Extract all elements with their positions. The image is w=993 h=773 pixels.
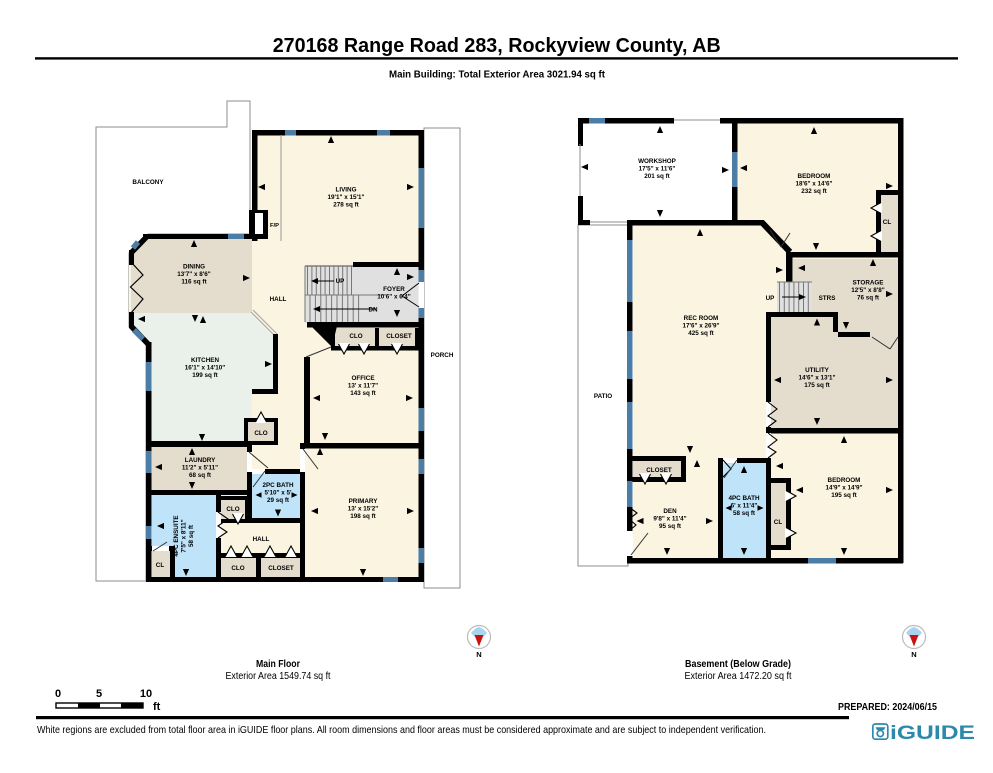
svg-text:LAUNDRY: LAUNDRY (185, 457, 216, 464)
svg-text:CL: CL (156, 562, 165, 569)
svg-text:14'6" x 13'1": 14'6" x 13'1" (799, 375, 836, 382)
svg-text:BEDROOM: BEDROOM (828, 477, 861, 484)
svg-text:STRS: STRS (819, 295, 836, 302)
svg-text:29 sq ft: 29 sq ft (267, 497, 290, 504)
svg-text:HALL: HALL (253, 536, 270, 543)
svg-text:11'2" x 5'11": 11'2" x 5'11" (182, 465, 218, 472)
svg-text:13' x 15'2": 13' x 15'2" (348, 506, 379, 513)
svg-text:9'8" x 11'4": 9'8" x 11'4" (653, 516, 686, 523)
svg-text:17'6" x 26'9": 17'6" x 26'9" (683, 323, 720, 330)
svg-text:195 sq ft: 195 sq ft (831, 492, 857, 499)
svg-text:CLOSET: CLOSET (646, 467, 672, 474)
svg-text:175 sq ft: 175 sq ft (804, 382, 830, 389)
svg-text:5: 5 (96, 688, 102, 700)
svg-text:BEDROOM: BEDROOM (798, 173, 831, 180)
svg-text:F/P: F/P (270, 223, 279, 229)
svg-text:2PC BATH: 2PC BATH (262, 482, 293, 489)
svg-text:REC ROOM: REC ROOM (684, 315, 719, 322)
svg-text:270168 Range Road 283, Rockyvi: 270168 Range Road 283, Rockyview County,… (273, 34, 721, 57)
svg-text:DN: DN (368, 307, 378, 314)
svg-text:425 sq ft: 425 sq ft (688, 330, 714, 337)
svg-text:UTILITY: UTILITY (805, 367, 830, 374)
svg-text:OFFICE: OFFICE (351, 375, 374, 382)
svg-text:58 sq ft: 58 sq ft (733, 510, 756, 517)
svg-text:CLOSET: CLOSET (268, 565, 294, 572)
svg-text:199 sq ft: 199 sq ft (192, 372, 218, 379)
svg-text:N: N (911, 650, 916, 659)
svg-text:UP: UP (766, 295, 775, 302)
svg-text:HALL: HALL (270, 296, 287, 303)
svg-text:143 sq ft: 143 sq ft (350, 390, 376, 397)
svg-text:19'1" x 15'1": 19'1" x 15'1" (328, 194, 365, 201)
svg-text:FOYER: FOYER (383, 286, 405, 293)
svg-text:Main Building: Total Exterior: Main Building: Total Exterior Area 3021.… (389, 69, 605, 81)
svg-text:14'9" x 14'9": 14'9" x 14'9" (826, 485, 863, 492)
svg-text:CLO: CLO (349, 333, 362, 340)
svg-text:PORCH: PORCH (431, 352, 454, 359)
svg-text:68 sq ft: 68 sq ft (189, 472, 212, 479)
svg-text:232 sq ft: 232 sq ft (801, 188, 827, 195)
svg-text:76 sq ft: 76 sq ft (857, 295, 880, 302)
svg-text:CL: CL (774, 519, 783, 526)
svg-text:58 sq ft: 58 sq ft (188, 524, 195, 547)
svg-text:PATIO: PATIO (594, 393, 612, 400)
svg-text:201 sq ft: 201 sq ft (644, 173, 670, 180)
svg-text:13' x 11'7": 13' x 11'7" (348, 383, 378, 390)
svg-text:WORKSHOP: WORKSHOP (638, 158, 676, 165)
svg-text:5'10" x 5': 5'10" x 5' (265, 490, 292, 497)
svg-text:13'7" x 8'6": 13'7" x 8'6" (177, 271, 210, 278)
svg-text:0: 0 (55, 688, 61, 700)
svg-text:278 sq ft: 278 sq ft (333, 202, 359, 209)
svg-text:4PC BATH: 4PC BATH (728, 495, 759, 502)
svg-text:CL: CL (883, 219, 892, 226)
svg-text:White regions are excluded fro: White regions are excluded from total fl… (37, 724, 766, 736)
svg-text:198 sq ft: 198 sq ft (350, 513, 376, 520)
svg-text:PREPARED: 2024/06/15: PREPARED: 2024/06/15 (838, 701, 937, 713)
svg-text:CLO: CLO (254, 430, 267, 437)
svg-text:Exterior Area 1549.74 sq ft: Exterior Area 1549.74 sq ft (226, 671, 331, 682)
svg-text:CLOSET: CLOSET (386, 333, 412, 340)
svg-text:STORAGE: STORAGE (852, 280, 883, 287)
svg-text:17'5" x 11'6": 17'5" x 11'6" (639, 166, 676, 173)
svg-text:CLO: CLO (231, 565, 244, 572)
svg-text:10'6" x 6'4": 10'6" x 6'4" (377, 294, 410, 301)
svg-text:KITCHEN: KITCHEN (191, 357, 219, 364)
svg-text:116 sq ft: 116 sq ft (181, 279, 207, 286)
svg-text:Exterior Area 1472.20 sq ft: Exterior Area 1472.20 sq ft (685, 671, 792, 682)
svg-text:UP: UP (336, 278, 345, 285)
svg-text:PRIMARY: PRIMARY (349, 498, 379, 505)
svg-text:LIVING: LIVING (336, 187, 357, 194)
svg-text:4PC ENSUITE: 4PC ENSUITE (173, 515, 180, 556)
svg-text:iGUIDE: iGUIDE (890, 723, 975, 744)
svg-text:12'5" x 8'8": 12'5" x 8'8" (851, 287, 884, 294)
svg-text:18'6" x 14'6": 18'6" x 14'6" (796, 181, 833, 188)
svg-text:Basement (Below Grade): Basement (Below Grade) (685, 659, 791, 670)
svg-text:7'5" x 8'11": 7'5" x 8'11" (181, 519, 188, 552)
svg-text:CLO: CLO (226, 506, 239, 513)
svg-text:N: N (476, 650, 481, 659)
svg-text:16'1" x 14'10": 16'1" x 14'10" (185, 365, 225, 372)
svg-text:BALCONY: BALCONY (132, 179, 164, 186)
svg-text:Main Floor: Main Floor (256, 659, 300, 670)
svg-text:10: 10 (140, 688, 152, 700)
svg-text:95 sq ft: 95 sq ft (659, 523, 682, 530)
svg-text:ft: ft (153, 701, 161, 713)
svg-text:DINING: DINING (183, 264, 205, 271)
svg-text:DEN: DEN (663, 508, 677, 515)
svg-text:6' x 11'4": 6' x 11'4" (731, 503, 758, 510)
